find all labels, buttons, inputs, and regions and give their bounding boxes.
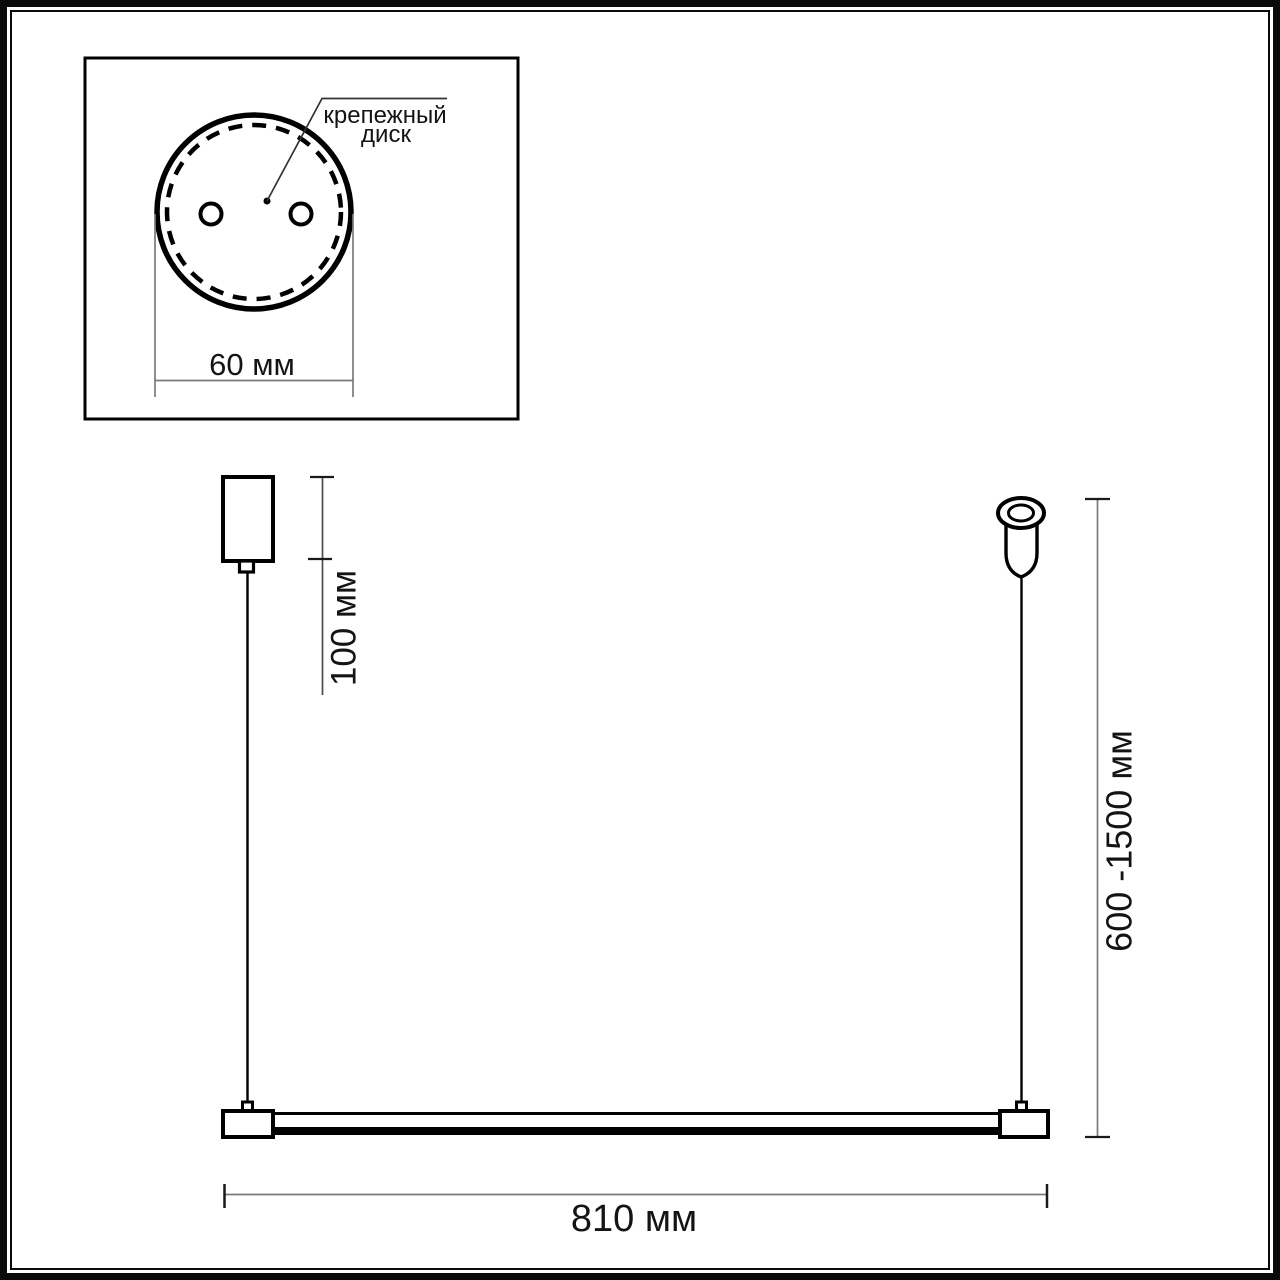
inset-dimension-label: 60 мм	[209, 347, 295, 382]
mounting-disc-dashed-circle	[167, 125, 341, 299]
bar-length-label: 810 мм	[571, 1198, 697, 1240]
diagram-canvas: крепежный диск 60 мм	[0, 0, 1280, 1280]
cable-grip-flange	[998, 498, 1044, 528]
inset-border	[85, 58, 518, 419]
canopy-height-label: 100 мм	[325, 570, 364, 686]
dimension-bar-length: 810 мм	[225, 1184, 1048, 1240]
line-drawing: крепежный диск 60 мм	[0, 0, 1280, 1280]
ceiling-canopy	[223, 477, 273, 561]
mounting-disc-outer-circle	[157, 115, 351, 309]
dimension-suspension-length: 600 -1500 мм	[1085, 499, 1140, 1137]
screw-hole-right	[291, 204, 312, 225]
inset-dimension: 60 мм	[155, 214, 353, 397]
cable-grip-body	[1006, 524, 1037, 577]
bar-end-cap-left	[223, 1111, 273, 1137]
cable-grip	[998, 498, 1044, 577]
bar-end-cap-right	[1000, 1111, 1048, 1137]
bar-led-strip	[273, 1127, 1000, 1135]
dimension-canopy-height: 100 мм	[308, 477, 364, 695]
callout-label-line2: диск	[361, 121, 411, 148]
suspension-length-label: 600 -1500 мм	[1099, 730, 1140, 952]
detail-inset: крепежный диск 60 мм	[85, 58, 518, 419]
screw-hole-left	[201, 204, 222, 225]
canopy-cable-connector	[240, 561, 254, 572]
